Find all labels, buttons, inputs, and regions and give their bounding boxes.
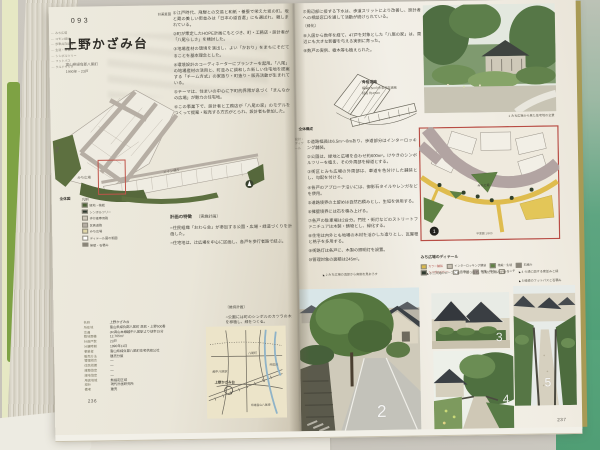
legend-row: 歩行者専用路 [82,215,154,221]
design-detail-item: ⑥擁壁境界には石を積み上げる。 [308,207,418,215]
design-detail-item: ③街区とみち広場の外周部は、車道を色分けした舗装とし、勾配を付ける。 [307,168,417,182]
legend-row: 石積み [516,263,532,268]
left-page: みち広場コモン緑地歩車共存道路生垣・石積みシンボルツリーフットパスクルドサック … [49,3,300,437]
legend-row: カラー舗装 [421,264,443,269]
top-text-item7: ⑦周辺部に接する下水は、歩道スリットにより改善し、設計者への相談窓口を通して活動… [303,7,421,21]
photo-4-number: 4 [503,392,510,406]
project-data-table: 名称 上野かざみ台 所在地 富山県婦負郡八尾町 高熊・上野500番 交通 JR高… [84,319,189,393]
legend-label: 石積み [524,263,533,267]
design-detail-item: ⑨街路灯は各戸に、木製の照明灯を設置。 [308,247,418,255]
legend-label: 緑地・植栽 [89,202,105,207]
plan-intent-item: ④環境設計のコーディネーターにプランナーを起用。「八尾」の地場産材の活用と、町並… [174,60,290,86]
svg-text:井田川: 井田川 [269,362,278,367]
skeleton-note2: 延長 約470m [362,91,380,96]
photo-5-number: 5 [545,375,552,389]
site-plan-figure: みち広場 メイン通り 緑道 [50,88,266,207]
design-detail-item: ⑤道路境界の土留めは自然石積みとし、生垣を併用する。 [308,198,418,206]
site-plan-legend: 緑地・植栽 シンボルツリー 歩行者専用路 区画道路 [82,202,155,249]
photo-4-caption: ◣4 ら通に面する家並みと緑 [519,269,577,275]
svg-text:県道富山八尾線: 県道富山八尾線 [251,403,271,407]
table-row: 備考 建売 [85,386,189,392]
photo-2-number: 2 [377,402,387,422]
skeleton-note1: 幅員6.5mの歩車共存道路 [362,86,397,91]
legend-title: 凡例 [82,197,89,202]
table-label: 備考 [85,387,111,392]
top-text-item8: ⑧入居から数年を経て、47戸を対象とした「八尾の家」は、周辺にも大きな影響を与え… [303,31,421,45]
design-detail-item: ①道路幅員は6.5m〜8mあり、歩道部分はインターロッキング舗装。 [307,137,417,151]
legend-label: ディテール図の範囲 [90,235,118,240]
legend-label: 歩行者専用路 [90,215,109,220]
legend-label: インターロッキング舗装 [454,264,486,268]
design-detail-item: ⑦各戸の駐車場は2台分。門柱・街灯などのストリートファニチュアは木製・鋳物とし、… [308,216,418,230]
photo-2-caption: ◣2 みち広場の頂部から南側を見おろす [323,271,419,277]
legend-chip [447,264,453,269]
plan-intent-item: ③地場産材の環境を演出し、よい「かおり」をまちにそだてることを基本理念とした。 [173,45,289,59]
legend-row: 区画道路 [82,221,154,227]
design-detail-item: ②公園は、緑地と広場を合わせ約600m²。けやきのシンボルツリーを植え、その外周… [307,153,417,167]
detail-map-figure: みち広場 平面図 1/500 1 [419,125,561,241]
legend-row: インターロッキング舗装 [447,263,486,268]
project-location: 富山県婦負郡八尾町 [66,62,98,68]
photo-2-street [299,287,421,431]
legend-label: 植栽・生垣 [498,263,513,267]
photo-1-caption: 1 みち広場から見た住宅地の全景 [444,113,554,119]
detail-map-title: みち広場のディテール [421,255,459,260]
page-title: 上野かざみ台 [64,33,148,53]
svg-text:みち広場: みち広場 [77,175,91,180]
legend-chip [82,222,88,227]
legend-chip [490,263,496,268]
skeleton-label: 骨格道路 [362,80,377,85]
legend-label: みち広場 [90,229,102,234]
project-number: 093 [71,18,90,25]
svg-text:平面図 1/500: 平面図 1/500 [476,231,493,235]
svg-text:みち広場: みち広場 [477,182,489,187]
photo-3-caption: ◣3 三叉路のカーブに面して建つ住宅。生垣と石積みが整う [427,270,513,276]
plan-intent-item: ①江戸時代、飛騨との交易と和紙・養蚕で栄えた坂の町。坂と蔵の美しい街並みは「日本… [173,8,289,28]
right-page-number: 237 [557,417,566,422]
legend-chip [421,264,427,269]
photo-4-garden-path [433,350,514,431]
legend-chip [82,229,88,234]
legend-chip [82,242,88,247]
svg-text:1: 1 [433,229,436,235]
design-detail-item: ④各戸のアプローチ沿いには、御影石タイルやレンガなどを使用。 [307,183,417,197]
svg-text:越中八尾駅: 越中八尾駅 [212,368,227,373]
camera-angle-icon: ◣ [519,280,521,284]
design-details-text: ①道路幅員は6.5m〜8mあり、歩道部分はインターロッキング舗装。②公園は、緑地… [307,137,419,266]
project-year: 1990年・23戸 [66,70,89,76]
plan-intent-item: ②町が策定したHOPE計画にもとづき、町・工務店・設計者が「八尾らしさ」を検討し… [173,30,289,44]
table-value: 建売 [111,387,118,392]
camera-angle-icon: ◣ [323,274,325,278]
legend-label: 擁壁・石積み [90,242,109,247]
legend-chip [82,209,88,214]
photo-1-streetscape [423,3,557,113]
legend-chip [82,236,88,241]
location-map-figure: 八尾町 井田川 越中八尾駅 県道富山八尾線 上野かざみ台 [206,325,287,418]
features-heading: 計画の特徴 [170,214,192,219]
legend-label: シンボルツリー [89,209,111,214]
top-text-item9: ⑨数戸の実例、樹木等も植えられた。 [303,46,421,54]
camera-angle-icon: ◣ [427,272,429,276]
legend-label: カラー舗装 [428,264,443,268]
features-item: ○住民組織「おわら会」が参加する公園・広場・緑道づくりを計画した。 [170,223,292,237]
legend-chip [82,216,88,221]
plan-intent-heading: 計画意図 [158,11,171,16]
top-text-block: ⑦周辺部に接する下水は、歩道スリットにより改善し、設計者への相談窓口を通して活動… [303,7,422,57]
right-page: ⑦周辺部に接する下水は、歩道スリットにより改善し、設計者への相談窓口を通して活動… [293,0,583,433]
features-text: ○住民組織「おわら会」が参加する公園・広場・緑道づくりを計画した。○住宅地は、辻… [170,223,292,246]
photo-3-number: 3 [496,330,503,344]
legend-row: 緑地・植栽 [82,202,154,208]
legend-chip [82,203,88,208]
legend-label: 区画道路 [90,222,102,227]
legend-row: みち広場 [82,228,154,234]
maintenance-text: ○公園には町のシンボルのカツラの木を移植し、緑をつくる。 [226,314,292,326]
greening-heading: 〔緑化〕 [303,23,421,30]
open-book-spread: みち広場コモン緑地歩車共存道路生垣・石積みシンボルツリーフットパスクルドサック … [49,0,583,437]
maintenance-block: 〔維持計画〕 ○公園には町のシンボルのカツラの木を移植し、緑をつくる。 [225,294,292,329]
site-plan-caption: 全体図 [60,197,71,202]
legend-row: シンボルツリー [82,208,154,214]
camera-angle-icon: ◣ [519,271,521,275]
maintenance-heading: 〔維持計画〕 [225,305,247,309]
legend-row: 植栽・生垣 [490,263,512,268]
features-subheading: 〔実施計画〕 [196,213,220,218]
design-detail-item: ⑩管理対象の面積は245m²。 [309,256,419,264]
maintenance-item: ○公園には町のシンボルのカツラの木を移植し、緑をつくる。 [226,314,292,326]
photo-5-caption: ◣5 緑道のフットパスと石積み [519,278,577,284]
features-item: ○住宅地は、辻広場を中心に区画し、各戸を歩行者路で結ぶ。 [170,239,292,247]
legend-row: 擁壁・石積み [82,241,154,247]
left-page-number: 236 [88,398,97,403]
legend-row: ディテール図の範囲 [82,235,154,241]
design-detail-item: ⑧住宅は内外とも地場の木材を活かした造りとし、瓦屋根と格子を多用する。 [308,232,418,246]
legend-chip [516,263,522,268]
svg-text:上野かざみ台: 上野かざみ台 [215,379,236,384]
features-block: 計画の特徴 〔実施計画〕 ○住民組織「おわら会」が参加する公園・広場・緑道づくり… [170,203,293,249]
svg-text:八尾町: 八尾町 [248,351,257,355]
book-photo: みち広場コモン緑地歩車共存道路生垣・石積みシンボルツリーフットパスクルドサック … [0,0,600,450]
